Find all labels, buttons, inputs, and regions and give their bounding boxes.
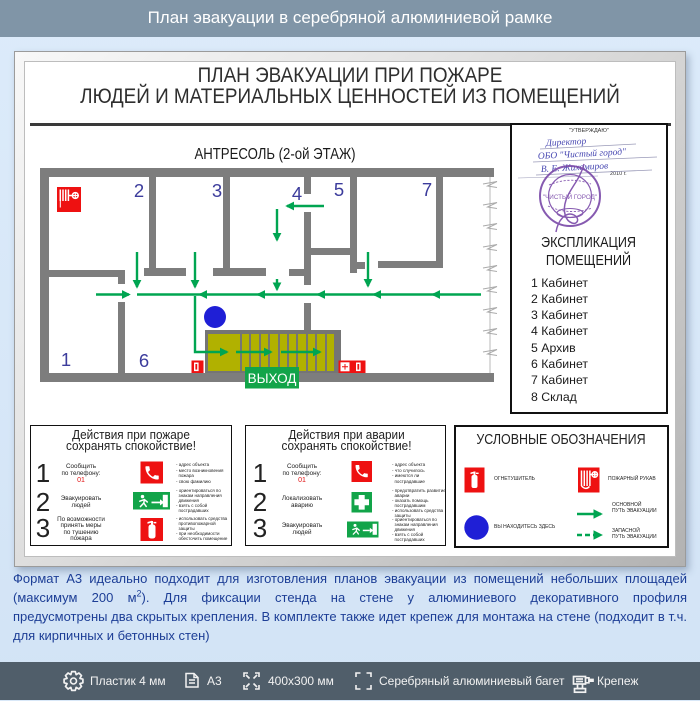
svg-text:5: 5 (334, 179, 344, 200)
svg-text:6: 6 (139, 350, 149, 371)
svg-text:ВЫХОД: ВЫХОД (248, 371, 297, 386)
svg-text:7: 7 (422, 179, 432, 200)
svg-text:4: 4 (292, 183, 302, 204)
svg-text:3: 3 (212, 180, 222, 201)
svg-text:1: 1 (61, 349, 71, 370)
svg-text:"ЧИСТЫЙ ГОРОД": "ЧИСТЫЙ ГОРОД" (543, 192, 597, 201)
svg-text:2: 2 (134, 180, 144, 201)
